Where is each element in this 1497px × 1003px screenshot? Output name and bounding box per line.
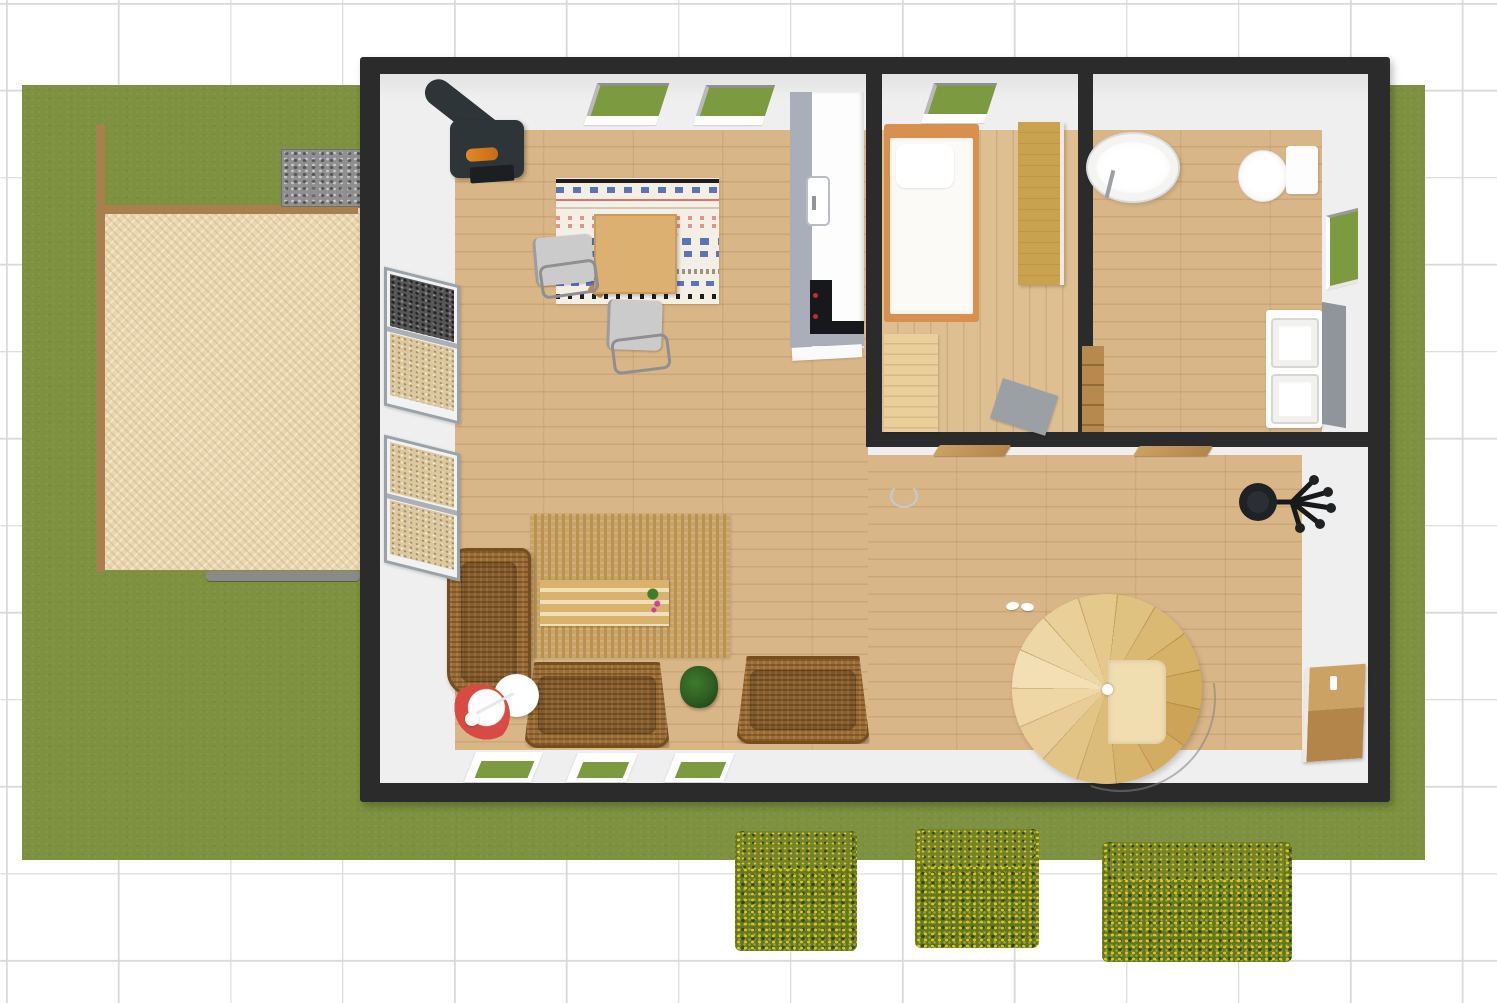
pillow [896,144,954,188]
sofa-center[interactable] [524,662,670,748]
sofa-seat [538,676,656,734]
sofa-right[interactable] [736,656,870,744]
stair-landing [1108,660,1166,744]
bench-flowers [644,586,666,618]
bathroom-window[interactable] [1326,208,1358,291]
hedge-1[interactable] [735,831,857,951]
floor-lamp[interactable] [448,684,510,746]
hedge-2[interactable] [915,829,1039,948]
bedroom-door[interactable] [933,445,1012,456]
roof-window-2[interactable] [696,85,775,116]
dining-table[interactable] [594,214,677,294]
vanity[interactable] [1266,310,1322,428]
stair-center-pole [1102,684,1113,695]
stove-fire-glow [466,147,499,162]
sofa-seat [750,670,856,730]
roof-window-1[interactable] [587,83,670,116]
floor-window-3[interactable] [664,753,735,782]
floor-window-2[interactable] [566,753,638,782]
roof-window-3[interactable] [924,83,997,114]
selection-marker-icon [890,484,918,508]
sofa-seat [461,562,517,682]
floor-window-1[interactable] [464,752,543,782]
stove-knob [813,293,818,298]
firewood-shelf-upper[interactable] [384,267,460,425]
vanity-basin [1271,318,1319,368]
patio[interactable] [103,208,360,570]
wall-kitchen-bedroom [866,74,882,447]
oven-front [810,321,864,334]
window-glass [475,761,535,778]
door-handle [1330,676,1337,690]
fence-left[interactable] [96,125,105,572]
window-sill [584,116,659,125]
bathtub[interactable] [1086,132,1180,203]
kitchen-sink[interactable] [806,176,830,226]
firewood-shelf-lower[interactable] [384,435,460,582]
wardrobe[interactable] [1018,122,1064,285]
gabion-wall[interactable] [281,149,362,207]
bathroom-door[interactable] [1133,446,1213,456]
window-glass [675,762,726,778]
hedge-top-face [1110,842,1285,880]
hedge-3[interactable] [1102,842,1292,962]
hedge-top-face [920,829,1034,867]
window-glass [577,762,629,778]
bath-cabinet[interactable] [1082,346,1104,432]
lamp-bulb [465,712,479,726]
vanity-door[interactable] [1322,302,1346,428]
window-sill [921,114,987,123]
stove-knob [813,314,818,319]
hedge-top-face [740,831,852,869]
stove-front [469,164,514,183]
wood-plank[interactable] [206,571,360,581]
window-sill [693,116,765,125]
chair-frame [610,333,672,376]
spiral-staircase[interactable] [1012,594,1212,794]
floorplan-scene: Office chair [0,0,1497,1003]
dresser[interactable] [884,334,938,432]
toilet-bowl[interactable] [1238,150,1288,202]
potted-plant[interactable] [680,666,718,708]
bed[interactable] [884,124,979,322]
office-chair[interactable]: Office chair [1228,472,1340,536]
toilet-tank [1286,146,1318,194]
vanity-basin [1271,374,1319,424]
faucet [812,196,816,210]
